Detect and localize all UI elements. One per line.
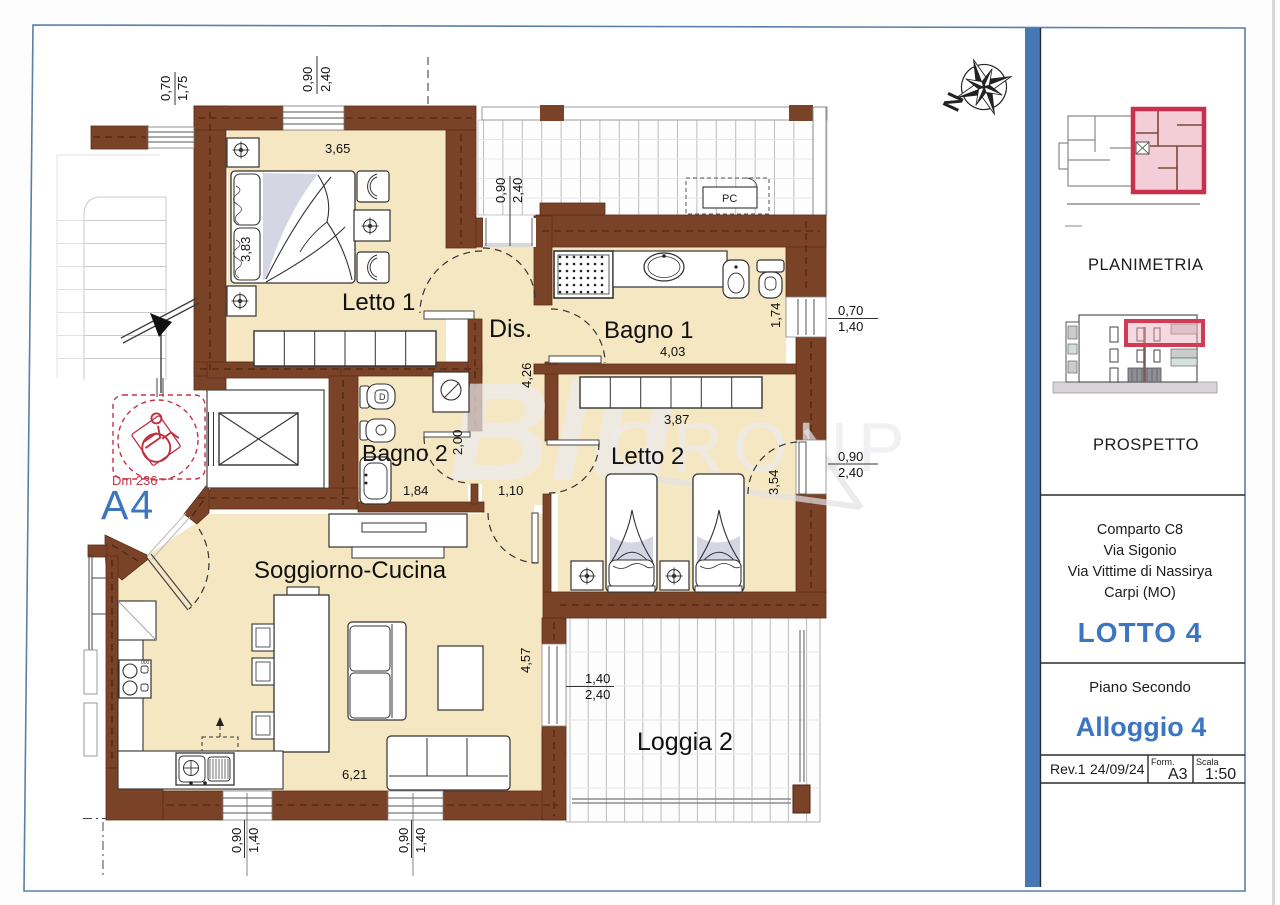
svg-text:3,65: 3,65: [325, 141, 350, 156]
svg-text:1,40: 1,40: [585, 671, 610, 686]
svg-text:Via Sigonio: Via Sigonio: [1103, 543, 1176, 559]
svg-text:Bagno 1: Bagno 1: [604, 317, 693, 344]
svg-text:PLANIMETRIA: PLANIMETRIA: [1088, 256, 1204, 274]
svg-text:Dis.: Dis.: [489, 315, 532, 343]
svg-text:Letto 1: Letto 1: [342, 289, 415, 316]
svg-text:4,26: 4,26: [519, 363, 534, 388]
svg-text:24/09/24: 24/09/24: [1090, 761, 1145, 777]
svg-text:4,03: 4,03: [660, 344, 685, 359]
svg-text:6,21: 6,21: [342, 767, 367, 782]
svg-text:Loggia 2: Loggia 2: [637, 728, 733, 756]
svg-text:1,74: 1,74: [768, 303, 783, 328]
svg-text:LOTTO 4: LOTTO 4: [1078, 617, 1203, 648]
svg-text:1,40: 1,40: [838, 319, 863, 334]
svg-text:0,90: 0,90: [396, 828, 411, 853]
svg-text:3,87: 3,87: [664, 412, 689, 427]
svg-text:A3: A3: [1168, 766, 1188, 783]
svg-text:Via Vittime di Nassirya: Via Vittime di Nassirya: [1068, 564, 1213, 580]
svg-text:3,83: 3,83: [238, 237, 253, 262]
svg-text:0,70: 0,70: [838, 303, 863, 318]
svg-text:Bagno 2: Bagno 2: [362, 440, 448, 466]
svg-text:Soggiorno-Cucina: Soggiorno-Cucina: [254, 557, 447, 584]
svg-text:1,75: 1,75: [175, 76, 190, 101]
svg-text:Carpi (MO): Carpi (MO): [1104, 585, 1176, 601]
svg-text:Letto 2: Letto 2: [611, 443, 684, 470]
svg-text:000: 000: [141, 660, 150, 666]
svg-text:2,40: 2,40: [585, 687, 610, 702]
svg-text:0,70: 0,70: [158, 76, 173, 101]
svg-text:1,40: 1,40: [246, 828, 261, 853]
svg-text:0,90: 0,90: [493, 178, 508, 203]
svg-text:2,00: 2,00: [450, 430, 465, 455]
svg-text:D: D: [379, 392, 386, 402]
svg-text:A4: A4: [101, 482, 155, 528]
svg-text:2,40: 2,40: [318, 67, 333, 92]
svg-text:Piano Secondo: Piano Secondo: [1089, 679, 1191, 696]
svg-text:Comparto C8: Comparto C8: [1097, 522, 1183, 538]
svg-text:Rev.1: Rev.1: [1050, 761, 1086, 777]
svg-text:1,84: 1,84: [403, 483, 428, 498]
svg-text:4,57: 4,57: [518, 648, 533, 673]
svg-text:3,54: 3,54: [766, 470, 781, 495]
svg-text:2,40: 2,40: [838, 465, 863, 480]
svg-text:0,90: 0,90: [838, 449, 863, 464]
svg-text:0,90: 0,90: [300, 67, 315, 92]
svg-text:1:50: 1:50: [1205, 766, 1236, 783]
svg-text:PROSPETTO: PROSPETTO: [1093, 436, 1199, 454]
svg-text:1,10: 1,10: [498, 483, 523, 498]
svg-text:0,90: 0,90: [229, 828, 244, 853]
svg-text:1,40: 1,40: [413, 828, 428, 853]
svg-text:Alloggio 4: Alloggio 4: [1076, 712, 1207, 742]
svg-text:PC: PC: [722, 193, 737, 205]
svg-text:2,40: 2,40: [510, 178, 525, 203]
